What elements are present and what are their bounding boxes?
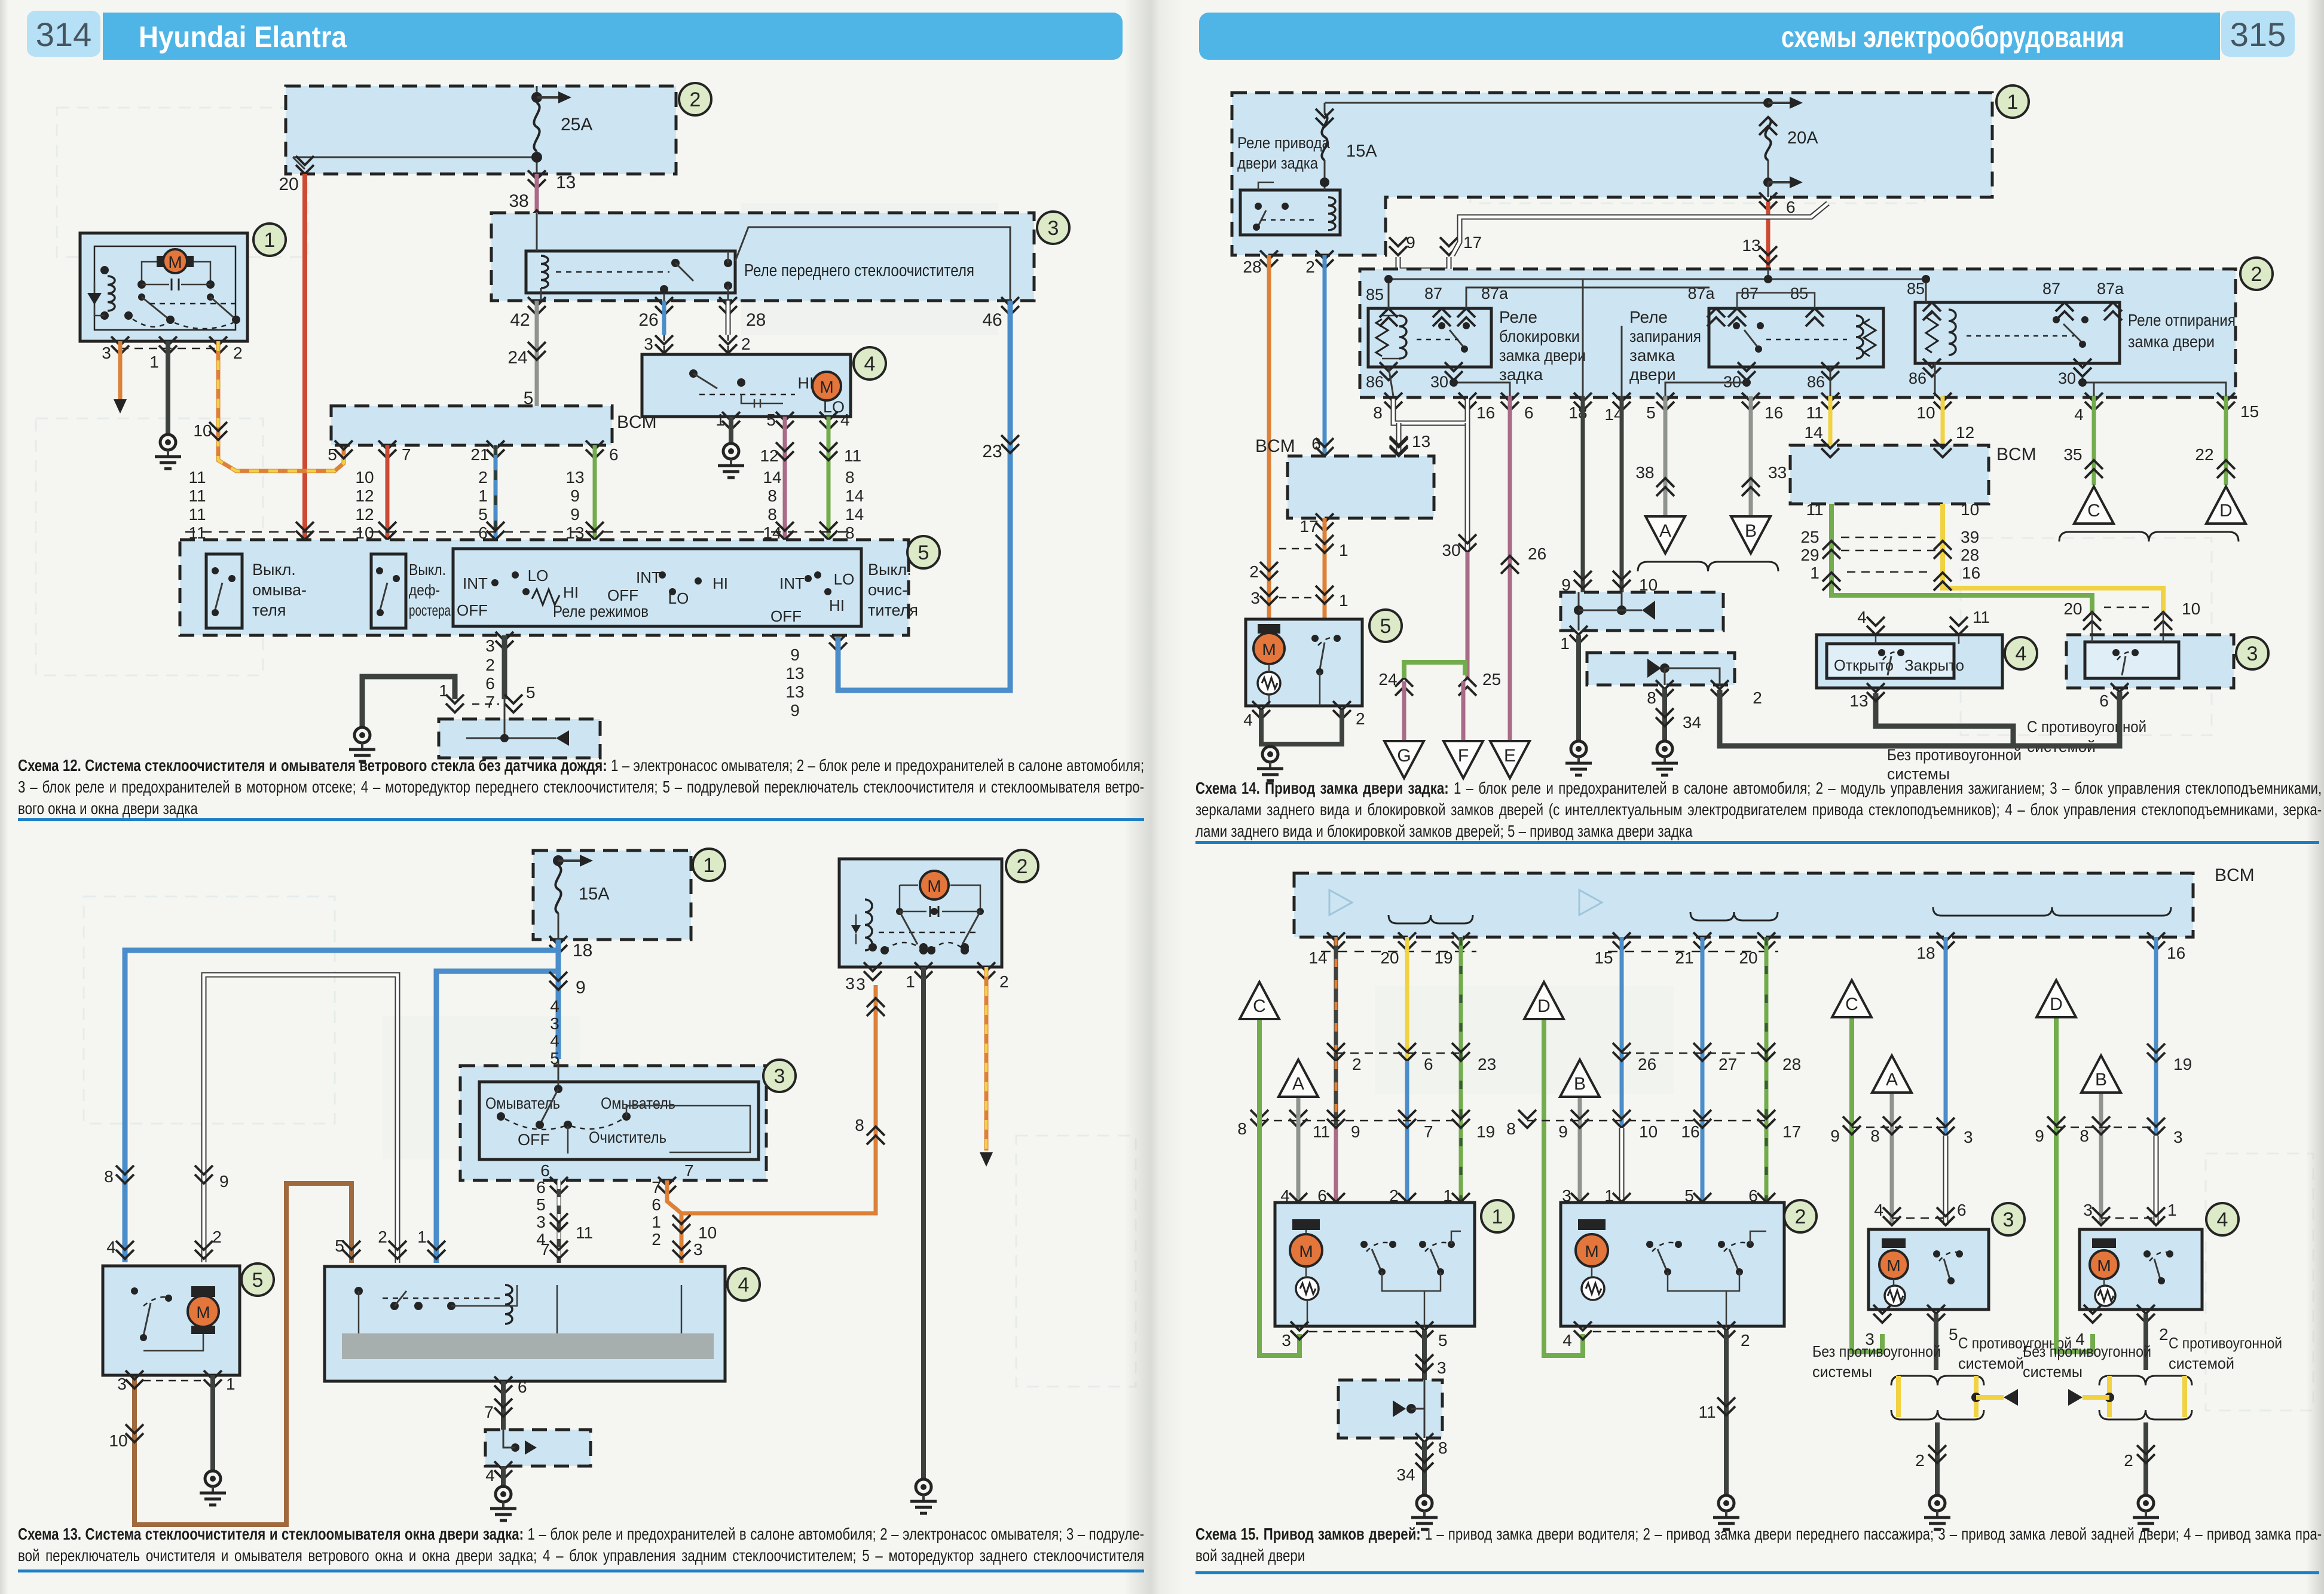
svg-text:4: 4 (550, 1032, 559, 1050)
svg-text:9: 9 (790, 701, 800, 720)
svg-text:11: 11 (1698, 1403, 1716, 1421)
svg-text:2: 2 (1915, 1451, 1925, 1470)
svg-text:D: D (2050, 995, 2063, 1014)
svg-text:28: 28 (1782, 1055, 1801, 1073)
svg-text:3: 3 (117, 1375, 127, 1393)
svg-text:25A: 25A (561, 115, 592, 134)
svg-text:14: 14 (845, 505, 864, 524)
svg-text:20: 20 (1739, 949, 1757, 967)
svg-text:Без противоугонной: Без противоугонной (2023, 1342, 2151, 1360)
svg-text:4: 4 (864, 353, 876, 375)
svg-text:системы: системы (1887, 765, 1950, 783)
svg-text:4: 4 (106, 1238, 116, 1256)
svg-text:11: 11 (188, 487, 206, 505)
svg-text:системой: системой (1958, 1354, 2024, 1372)
svg-text:Реле режимов: Реле режимов (553, 602, 649, 620)
svg-text:1: 1 (439, 681, 448, 700)
svg-text:16: 16 (1476, 403, 1495, 422)
svg-text:B: B (1574, 1074, 1586, 1094)
svg-text:M: M (1886, 1256, 1900, 1275)
svg-text:6: 6 (1524, 403, 1534, 422)
svg-text:18: 18 (573, 941, 592, 960)
svg-text:16: 16 (2167, 944, 2185, 962)
svg-text:4: 4 (738, 1274, 750, 1296)
svg-text:5: 5 (252, 1269, 264, 1292)
svg-text:4: 4 (2016, 643, 2027, 665)
svg-text:3: 3 (1964, 1128, 1973, 1146)
svg-text:14: 14 (1804, 423, 1822, 442)
svg-text:27: 27 (1718, 1055, 1737, 1073)
svg-text:4: 4 (485, 1466, 495, 1485)
svg-text:4: 4 (2217, 1208, 2228, 1231)
svg-text:11: 11 (1973, 608, 1990, 626)
svg-text:15A: 15A (1346, 142, 1377, 161)
svg-text:16: 16 (1962, 564, 1980, 582)
svg-text:7: 7 (652, 1178, 661, 1197)
svg-text:3: 3 (102, 344, 111, 362)
svg-text:11: 11 (576, 1223, 593, 1242)
svg-text:10: 10 (193, 421, 212, 440)
svg-text:Реле отпирания: Реле отпирания (2128, 311, 2236, 329)
svg-text:7: 7 (485, 693, 495, 711)
svg-text:12: 12 (760, 446, 778, 465)
svg-text:2: 2 (478, 468, 488, 487)
svg-text:6: 6 (536, 1178, 546, 1197)
svg-text:ростера: ростера (409, 601, 451, 619)
svg-text:9: 9 (1351, 1122, 1360, 1141)
svg-text:2: 2 (652, 1230, 661, 1249)
svg-text:1: 1 (2007, 91, 2019, 114)
svg-text:2: 2 (1741, 1331, 1750, 1350)
svg-text:16: 16 (1765, 403, 1783, 422)
svg-text:1: 1 (1339, 541, 1348, 559)
svg-text:16: 16 (1681, 1122, 1699, 1141)
svg-text:1: 1 (226, 1375, 236, 1393)
svg-text:20: 20 (2063, 599, 2082, 618)
svg-text:4: 4 (1243, 711, 1253, 729)
svg-text:3: 3 (1048, 217, 1059, 240)
svg-text:6: 6 (652, 1195, 661, 1214)
svg-text:18: 18 (1916, 944, 1935, 962)
svg-text:3: 3 (2003, 1208, 2014, 1231)
svg-text:10: 10 (1639, 1122, 1658, 1141)
svg-text:8: 8 (1870, 1127, 1880, 1145)
svg-text:замка: замка (1629, 346, 1675, 365)
svg-text:33: 33 (1768, 463, 1787, 482)
svg-text:системой: системой (2169, 1354, 2234, 1372)
svg-text:9: 9 (1406, 233, 1415, 252)
svg-text:2: 2 (2159, 1325, 2169, 1344)
svg-text:2: 2 (741, 335, 751, 353)
svg-text:2: 2 (999, 972, 1009, 991)
svg-text:28: 28 (746, 310, 766, 330)
svg-text:8: 8 (2080, 1127, 2089, 1145)
svg-text:25: 25 (1800, 528, 1819, 546)
svg-text:E: E (1504, 746, 1516, 766)
svg-text:6: 6 (540, 1161, 550, 1180)
svg-text:14: 14 (1308, 949, 1327, 967)
svg-text:11: 11 (1806, 500, 1823, 519)
svg-text:17: 17 (1782, 1122, 1801, 1141)
svg-text:2: 2 (233, 344, 243, 362)
svg-text:13: 13 (1412, 432, 1430, 451)
svg-text:OFF: OFF (770, 607, 802, 625)
svg-text:7: 7 (484, 1403, 494, 1421)
svg-text:10: 10 (1916, 403, 1935, 422)
svg-text:1: 1 (906, 972, 915, 991)
svg-text:BCM: BCM (617, 412, 657, 432)
svg-text:24: 24 (1378, 670, 1397, 689)
svg-text:2: 2 (2251, 263, 2262, 286)
svg-text:9: 9 (2035, 1127, 2044, 1145)
svg-text:1: 1 (1810, 564, 1820, 582)
svg-text:Выкл.: Выкл. (409, 561, 446, 579)
svg-text:4: 4 (1874, 1201, 1883, 1219)
svg-text:запирания: запирания (1629, 327, 1701, 345)
svg-text:34: 34 (1683, 713, 1701, 732)
svg-text:3: 3 (1282, 1331, 1291, 1350)
svg-text:3: 3 (2173, 1128, 2183, 1146)
svg-text:5: 5 (328, 445, 337, 464)
svg-text:86: 86 (1366, 373, 1384, 391)
svg-text:INT: INT (779, 574, 805, 592)
svg-text:1: 1 (704, 854, 715, 877)
svg-text:3: 3 (2083, 1201, 2093, 1219)
svg-text:7: 7 (402, 445, 411, 464)
svg-text:34: 34 (1396, 1465, 1415, 1484)
svg-text:2: 2 (212, 1228, 222, 1246)
svg-text:20: 20 (279, 175, 298, 194)
svg-text:1: 1 (1560, 634, 1570, 653)
svg-text:21: 21 (470, 445, 489, 464)
svg-text:Выкл.: Выкл. (252, 561, 296, 579)
svg-text:BCM: BCM (1255, 436, 1295, 456)
svg-text:11: 11 (188, 468, 206, 487)
svg-text:6: 6 (485, 674, 495, 693)
svg-text:15A: 15A (579, 885, 610, 904)
svg-text:1: 1 (1339, 591, 1348, 610)
svg-text:4: 4 (1857, 608, 1867, 626)
svg-text:19: 19 (2173, 1055, 2192, 1073)
svg-text:С противоугонной: С противоугонной (2027, 718, 2146, 736)
svg-text:5: 5 (536, 1195, 546, 1214)
svg-text:F: F (1458, 746, 1469, 766)
svg-text:6: 6 (518, 1378, 527, 1396)
svg-text:8: 8 (1237, 1119, 1247, 1138)
svg-text:7: 7 (540, 1240, 550, 1259)
svg-text:1: 1 (149, 353, 159, 371)
svg-text:LO: LO (528, 567, 549, 585)
svg-text:1: 1 (1492, 1206, 1503, 1228)
svg-text:9: 9 (576, 978, 586, 998)
svg-text:4: 4 (2074, 405, 2084, 424)
svg-text:OFF: OFF (518, 1131, 550, 1149)
svg-text:13: 13 (785, 683, 804, 701)
svg-text:3: 3 (536, 1213, 546, 1231)
svg-text:3: 3 (693, 1240, 703, 1259)
svg-text:9: 9 (570, 487, 580, 505)
svg-text:Очиститель: Очиститель (589, 1128, 666, 1146)
svg-text:4: 4 (1562, 1331, 1572, 1350)
svg-text:OFF: OFF (457, 601, 488, 619)
svg-text:M: M (196, 1303, 210, 1321)
svg-text:8: 8 (845, 468, 855, 487)
svg-text:9: 9 (219, 1172, 229, 1191)
svg-text:3: 3 (856, 975, 866, 993)
svg-text:блокировки: блокировки (1499, 327, 1580, 345)
svg-text:46: 46 (982, 310, 1002, 330)
svg-text:5: 5 (1380, 615, 1392, 638)
svg-text:12: 12 (1956, 423, 1974, 442)
svg-text:4: 4 (840, 411, 850, 429)
svg-text:23: 23 (1478, 1055, 1496, 1073)
svg-text:7: 7 (1424, 1122, 1433, 1141)
svg-text:A: A (1292, 1074, 1304, 1094)
svg-text:BCM: BCM (2215, 865, 2255, 885)
svg-text:5: 5 (478, 505, 488, 524)
svg-text:3: 3 (550, 1014, 559, 1033)
svg-text:HI: HI (798, 374, 814, 392)
svg-text:двери задка: двери задка (1237, 154, 1319, 172)
svg-text:M: M (1585, 1242, 1598, 1260)
svg-text:20A: 20A (1787, 129, 1818, 148)
svg-text:Омыватель: Омыватель (485, 1094, 560, 1112)
svg-text:INT: INT (463, 574, 488, 592)
svg-text:8: 8 (767, 487, 777, 505)
svg-text:13: 13 (1849, 692, 1868, 710)
svg-text:BCM: BCM (1996, 445, 2036, 464)
svg-text:M: M (1262, 640, 1276, 659)
svg-text:11: 11 (188, 505, 206, 524)
svg-text:19: 19 (1476, 1122, 1495, 1141)
svg-text:6: 6 (609, 445, 619, 464)
svg-text:2: 2 (1249, 562, 1259, 581)
svg-text:3: 3 (485, 637, 495, 655)
svg-text:10: 10 (698, 1223, 717, 1242)
svg-text:11: 11 (1313, 1122, 1330, 1141)
svg-text:системы: системы (1812, 1363, 1872, 1381)
svg-text:очис-: очис- (868, 581, 907, 599)
svg-text:13: 13 (1742, 236, 1760, 255)
svg-text:9: 9 (1558, 1122, 1568, 1141)
svg-text:задка: задка (1499, 365, 1543, 384)
svg-text:19: 19 (1434, 949, 1452, 967)
svg-text:деф-: деф- (409, 581, 440, 599)
svg-text:2: 2 (1356, 709, 1365, 728)
svg-text:Выкл.: Выкл. (868, 561, 912, 579)
svg-text:5: 5 (526, 683, 536, 702)
svg-text:1: 1 (652, 1213, 661, 1231)
svg-text:6: 6 (1957, 1201, 1967, 1219)
svg-text:87: 87 (1424, 284, 1442, 302)
svg-text:3: 3 (2247, 643, 2258, 665)
svg-text:3: 3 (1250, 589, 1260, 607)
svg-text:13: 13 (785, 664, 804, 683)
svg-text:35: 35 (2063, 445, 2082, 464)
svg-text:8: 8 (767, 505, 777, 524)
svg-text:A: A (1886, 1070, 1898, 1090)
svg-text:C: C (1253, 996, 1266, 1016)
svg-text:38: 38 (509, 191, 528, 211)
svg-text:D: D (2219, 501, 2233, 521)
svg-text:8: 8 (855, 1116, 864, 1134)
svg-text:85: 85 (1366, 286, 1384, 304)
svg-text:M: M (2097, 1256, 2111, 1275)
svg-text:Омыватель: Омыватель (601, 1094, 675, 1112)
svg-text:2: 2 (1753, 689, 1762, 707)
svg-text:С противоугонной: С противоугонной (2169, 1334, 2282, 1352)
svg-text:26: 26 (1638, 1055, 1656, 1073)
svg-text:INT: INT (636, 568, 661, 586)
svg-text:9: 9 (1830, 1127, 1840, 1145)
svg-text:1: 1 (417, 1228, 427, 1246)
svg-text:LO: LO (834, 570, 855, 588)
svg-text:5: 5 (1949, 1325, 1958, 1344)
svg-text:30: 30 (1430, 373, 1448, 391)
svg-text:1: 1 (264, 229, 276, 252)
svg-text:тителя: тителя (868, 601, 918, 619)
svg-text:теля: теля (252, 601, 286, 619)
svg-text:2: 2 (2124, 1451, 2133, 1470)
svg-text:D: D (1537, 996, 1551, 1016)
svg-text:B: B (1745, 521, 1757, 541)
svg-text:15: 15 (1594, 949, 1613, 967)
svg-text:24: 24 (507, 348, 527, 368)
svg-text:3: 3 (774, 1065, 785, 1088)
svg-text:39: 39 (1961, 528, 1979, 546)
svg-text:6: 6 (2099, 692, 2109, 710)
svg-text:1: 1 (478, 487, 488, 505)
svg-text:8: 8 (1438, 1439, 1448, 1457)
svg-text:7: 7 (684, 1161, 694, 1180)
svg-text:26: 26 (638, 310, 658, 330)
svg-text:9: 9 (790, 645, 800, 664)
svg-text:20: 20 (1380, 949, 1399, 967)
svg-text:замка двери: замка двери (1499, 346, 1586, 365)
svg-text:85: 85 (1907, 280, 1925, 298)
svg-text:2: 2 (690, 88, 701, 111)
svg-text:M: M (819, 378, 833, 396)
svg-text:1: 1 (2167, 1201, 2177, 1219)
svg-text:30: 30 (2058, 369, 2076, 387)
svg-text:3: 3 (845, 974, 855, 993)
svg-text:2: 2 (485, 656, 495, 674)
svg-text:M: M (927, 877, 941, 895)
svg-text:22: 22 (2195, 445, 2213, 464)
svg-text:Реле: Реле (1629, 308, 1668, 326)
svg-text:25: 25 (1482, 670, 1501, 689)
svg-text:Реле привода: Реле привода (1237, 134, 1331, 152)
svg-text:8: 8 (1647, 689, 1656, 707)
svg-text:5: 5 (918, 541, 929, 564)
svg-text:двери: двери (1629, 365, 1676, 384)
svg-text:2: 2 (1305, 258, 1315, 276)
svg-text:5: 5 (1438, 1331, 1448, 1350)
svg-text:10: 10 (109, 1431, 127, 1450)
svg-text:8: 8 (104, 1167, 114, 1186)
svg-text:11: 11 (1806, 403, 1823, 422)
svg-text:B: B (2095, 1070, 2107, 1090)
svg-text:21: 21 (1675, 949, 1693, 967)
svg-text:5: 5 (335, 1237, 344, 1255)
svg-text:86: 86 (1807, 373, 1825, 391)
svg-text:5: 5 (1646, 403, 1656, 422)
svg-text:M: M (1299, 1242, 1313, 1260)
svg-text:87a: 87a (2097, 280, 2124, 298)
svg-text:12: 12 (355, 505, 374, 524)
svg-text:C: C (1845, 995, 1858, 1014)
svg-text:8: 8 (1506, 1119, 1516, 1138)
svg-text:28: 28 (1961, 546, 1979, 564)
svg-text:5: 5 (766, 411, 776, 429)
svg-text:15: 15 (2240, 402, 2259, 421)
svg-text:M: M (168, 253, 182, 271)
svg-text:Открыто: Открыто (1834, 656, 1894, 674)
svg-text:29: 29 (1800, 546, 1819, 564)
svg-text:Без противоугонной: Без противоугонной (1812, 1342, 1941, 1360)
svg-text:G: G (1397, 746, 1411, 766)
svg-text:14: 14 (845, 487, 864, 505)
svg-text:2: 2 (378, 1228, 387, 1246)
svg-text:28: 28 (1243, 258, 1261, 276)
svg-text:17: 17 (1463, 233, 1482, 252)
svg-text:Закрыто: Закрыто (1904, 656, 1964, 674)
svg-text:12: 12 (355, 487, 374, 505)
svg-text:системы: системы (2023, 1363, 2083, 1381)
svg-text:17: 17 (1299, 517, 1318, 536)
svg-text:30: 30 (1442, 541, 1460, 559)
svg-text:6: 6 (1424, 1055, 1433, 1073)
svg-text:2: 2 (1017, 855, 1028, 878)
svg-text:A: A (1659, 521, 1671, 541)
svg-text:HI: HI (713, 574, 728, 592)
svg-text:13: 13 (556, 173, 576, 192)
svg-text:13: 13 (565, 468, 584, 487)
svg-text:11: 11 (844, 446, 861, 465)
svg-text:10: 10 (355, 468, 374, 487)
svg-text:Реле переднего стеклоочистител: Реле переднего стеклоочистителя (744, 261, 974, 280)
svg-text:2: 2 (1352, 1055, 1362, 1073)
svg-text:86: 86 (1909, 369, 1927, 387)
svg-text:HI: HI (829, 596, 845, 614)
svg-text:9: 9 (570, 505, 580, 524)
svg-text:OFF: OFF (607, 586, 638, 604)
svg-text:26: 26 (1528, 544, 1546, 563)
svg-text:2: 2 (1795, 1206, 1806, 1228)
svg-text:8: 8 (1373, 403, 1383, 422)
svg-text:3: 3 (644, 335, 653, 353)
svg-text:23: 23 (982, 442, 1002, 461)
svg-text:6: 6 (1786, 198, 1796, 216)
svg-text:замка двери: замка двери (2128, 332, 2215, 351)
svg-text:омыва-: омыва- (252, 581, 307, 599)
svg-text:14: 14 (763, 468, 781, 487)
svg-text:Реле: Реле (1499, 308, 1537, 326)
svg-text:10: 10 (2182, 599, 2200, 618)
svg-text:87: 87 (2042, 280, 2060, 298)
svg-text:3: 3 (1437, 1359, 1447, 1377)
svg-text:38: 38 (1635, 463, 1654, 482)
svg-text:10: 10 (1961, 500, 1979, 519)
svg-text:1: 1 (715, 411, 725, 429)
svg-text:C: C (2087, 501, 2100, 521)
svg-text:42: 42 (510, 310, 530, 330)
svg-text:4: 4 (550, 997, 559, 1015)
svg-text:HI: HI (563, 583, 579, 601)
